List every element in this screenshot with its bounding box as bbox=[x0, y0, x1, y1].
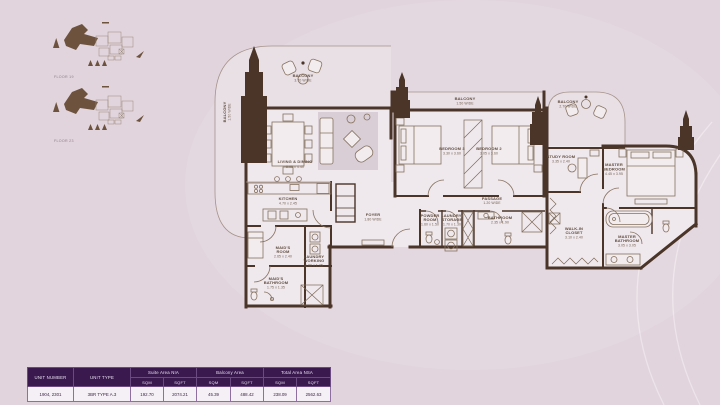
col-header-suite-area: Suite Area NIA bbox=[131, 368, 197, 378]
svg-text:ROOM: ROOM bbox=[423, 217, 437, 222]
svg-text:3.05 x 3.60: 3.05 x 3.60 bbox=[480, 152, 498, 156]
key-plan-label: FLOOR 23 bbox=[54, 139, 74, 143]
col-header-sqft: SQFT bbox=[164, 378, 197, 387]
svg-text:1.00 x 1.35: 1.00 x 1.35 bbox=[305, 264, 323, 268]
sofa bbox=[320, 118, 333, 164]
plant-icon bbox=[585, 96, 588, 99]
col-header-sqm: SQM bbox=[131, 378, 164, 387]
svg-text:BALCONY: BALCONY bbox=[293, 73, 314, 78]
cell-balcony-sqft: 488.42 bbox=[231, 387, 264, 402]
col-header-unit-type: UNIT TYPE bbox=[74, 368, 131, 387]
svg-text:STUDY ROOM: STUDY ROOM bbox=[547, 154, 576, 159]
cell-suite-sqft: 2074.21 bbox=[164, 387, 197, 402]
svg-text:2.35 x 1.90: 2.35 x 1.90 bbox=[491, 221, 509, 225]
col-header-unit-number: UNIT NUMBER bbox=[28, 368, 74, 387]
cell-unit-type: 3BR TYPE A.3 bbox=[74, 387, 131, 402]
cell-total-sqm: 238.09 bbox=[264, 387, 297, 402]
svg-text:BATHROOM: BATHROOM bbox=[264, 280, 289, 285]
bed bbox=[248, 232, 263, 258]
toilet-icon bbox=[426, 235, 432, 243]
col-header-sqm: SQM bbox=[264, 378, 297, 387]
svg-text:KITCHEN: KITCHEN bbox=[279, 196, 298, 201]
svg-text:BATHROOM: BATHROOM bbox=[615, 238, 640, 243]
bedroom-3-furniture bbox=[396, 118, 441, 172]
svg-text:FOYER: FOYER bbox=[366, 212, 381, 217]
toilet-icon bbox=[663, 224, 669, 232]
svg-text:1.80 WIDE: 1.80 WIDE bbox=[364, 218, 382, 222]
svg-text:ROOM: ROOM bbox=[276, 249, 290, 254]
master-bedroom-furniture bbox=[619, 149, 683, 204]
label-maids-room: MAID'SROOM2.65 x 2.40 bbox=[274, 245, 292, 259]
svg-text:LIVING & DINING: LIVING & DINING bbox=[278, 159, 313, 164]
bed bbox=[627, 150, 675, 196]
svg-text:1.75 x 1.35: 1.75 x 1.35 bbox=[267, 286, 285, 290]
col-header-sqft: SQFT bbox=[231, 378, 264, 387]
svg-text:3.35 x 2.40: 3.35 x 2.40 bbox=[552, 160, 570, 164]
svg-text:1.20 WIDE: 1.20 WIDE bbox=[483, 201, 501, 205]
svg-text:BEDROOM: BEDROOM bbox=[603, 167, 625, 172]
toilet-icon bbox=[505, 236, 511, 244]
svg-text:BATHROOM: BATHROOM bbox=[488, 215, 513, 220]
cell-unit-number: 1904, 2301 bbox=[28, 387, 74, 402]
unit-areas-table: UNIT NUMBER UNIT TYPE Suite Area NIA Bal… bbox=[27, 367, 331, 402]
key-plan-label: FLOOR 19 bbox=[54, 75, 74, 79]
key-plan-floor-23: FLOOR 23 bbox=[53, 86, 144, 143]
label-laundry-working: LAUNDRYWORKING1.00 x 1.35 bbox=[304, 254, 325, 268]
svg-text:BEDROOM 2: BEDROOM 2 bbox=[476, 146, 502, 151]
label-laundry-storage: LAUNDRY/STORAGE1.70 x 1.30 bbox=[441, 213, 463, 227]
label-balcony-left: BALCONY1.50 WIDE bbox=[222, 101, 232, 122]
svg-text:3.05 x 3.05: 3.05 x 3.05 bbox=[618, 244, 636, 248]
svg-text:3.30 x 3.60: 3.30 x 3.60 bbox=[443, 152, 461, 156]
svg-text:8.05 x 4.40: 8.05 x 4.40 bbox=[286, 165, 304, 169]
svg-text:BEDROOM 3: BEDROOM 3 bbox=[439, 146, 465, 151]
toilet-icon bbox=[251, 292, 257, 300]
svg-text:1.60 x 1.50: 1.60 x 1.50 bbox=[421, 223, 439, 227]
svg-text:BALCONY: BALCONY bbox=[558, 99, 579, 104]
floor-plan-sheet: FLOOR 19 FLOOR 23 bbox=[0, 0, 720, 405]
svg-text:4.70 x 2.45: 4.70 x 2.45 bbox=[279, 202, 297, 206]
cell-total-sqft: 2562.63 bbox=[297, 387, 331, 402]
label-foyer: FOYER1.80 WIDE bbox=[364, 212, 382, 222]
key-plan-floor-19: FLOOR 19 bbox=[53, 22, 144, 79]
col-header-sqft: SQFT bbox=[297, 378, 331, 387]
svg-text:STORAGE: STORAGE bbox=[442, 217, 463, 222]
plant-icon bbox=[301, 61, 304, 64]
svg-text:WORKING: WORKING bbox=[304, 258, 325, 263]
label-passage: PASSAGE1.20 WIDE bbox=[482, 196, 502, 205]
col-header-total-area: Total Area NSA bbox=[264, 368, 331, 378]
svg-text:CLOSET: CLOSET bbox=[565, 230, 583, 235]
svg-text:1.70 x 1.30: 1.70 x 1.30 bbox=[443, 223, 461, 227]
svg-text:BALCONY: BALCONY bbox=[455, 96, 476, 101]
cell-balcony-sqm: 45.39 bbox=[197, 387, 231, 402]
label-master-bedroom: MASTERBEDROOM4.45 x 3.95 bbox=[603, 162, 625, 176]
svg-text:3.10 x 2.40: 3.10 x 2.40 bbox=[565, 236, 583, 240]
col-header-balcony-area: Balcony Area bbox=[197, 368, 264, 378]
col-header-sqm: SQM bbox=[197, 378, 231, 387]
label-walk-in-closet: WALK-INCLOSET3.10 x 2.40 bbox=[565, 226, 583, 240]
table-row: 1904, 2301 3BR TYPE A.3 192.70 2074.21 4… bbox=[28, 387, 331, 402]
label-balcony-middle: BALCONY1.50 WIDE bbox=[455, 96, 476, 106]
svg-text:4.45 x 3.95: 4.45 x 3.95 bbox=[605, 172, 623, 176]
label-balcony-top-left: BALCONY3.70 WIDE bbox=[293, 73, 314, 83]
label-balcony-right: BALCONY2.70 WIDE bbox=[558, 99, 579, 109]
cell-suite-sqm: 192.70 bbox=[131, 387, 164, 402]
svg-text:3.70 WIDE: 3.70 WIDE bbox=[294, 79, 312, 83]
svg-text:1.50 WIDE: 1.50 WIDE bbox=[228, 103, 232, 121]
svg-text:1.50 WIDE: 1.50 WIDE bbox=[456, 102, 474, 106]
svg-text:2.65 x 2.40: 2.65 x 2.40 bbox=[274, 255, 292, 259]
svg-text:2.70 WIDE: 2.70 WIDE bbox=[559, 105, 577, 109]
desk bbox=[578, 158, 587, 178]
label-kitchen: KITCHEN4.70 x 2.45 bbox=[279, 196, 298, 206]
svg-text:BALCONY: BALCONY bbox=[222, 101, 227, 122]
bed bbox=[399, 126, 441, 164]
